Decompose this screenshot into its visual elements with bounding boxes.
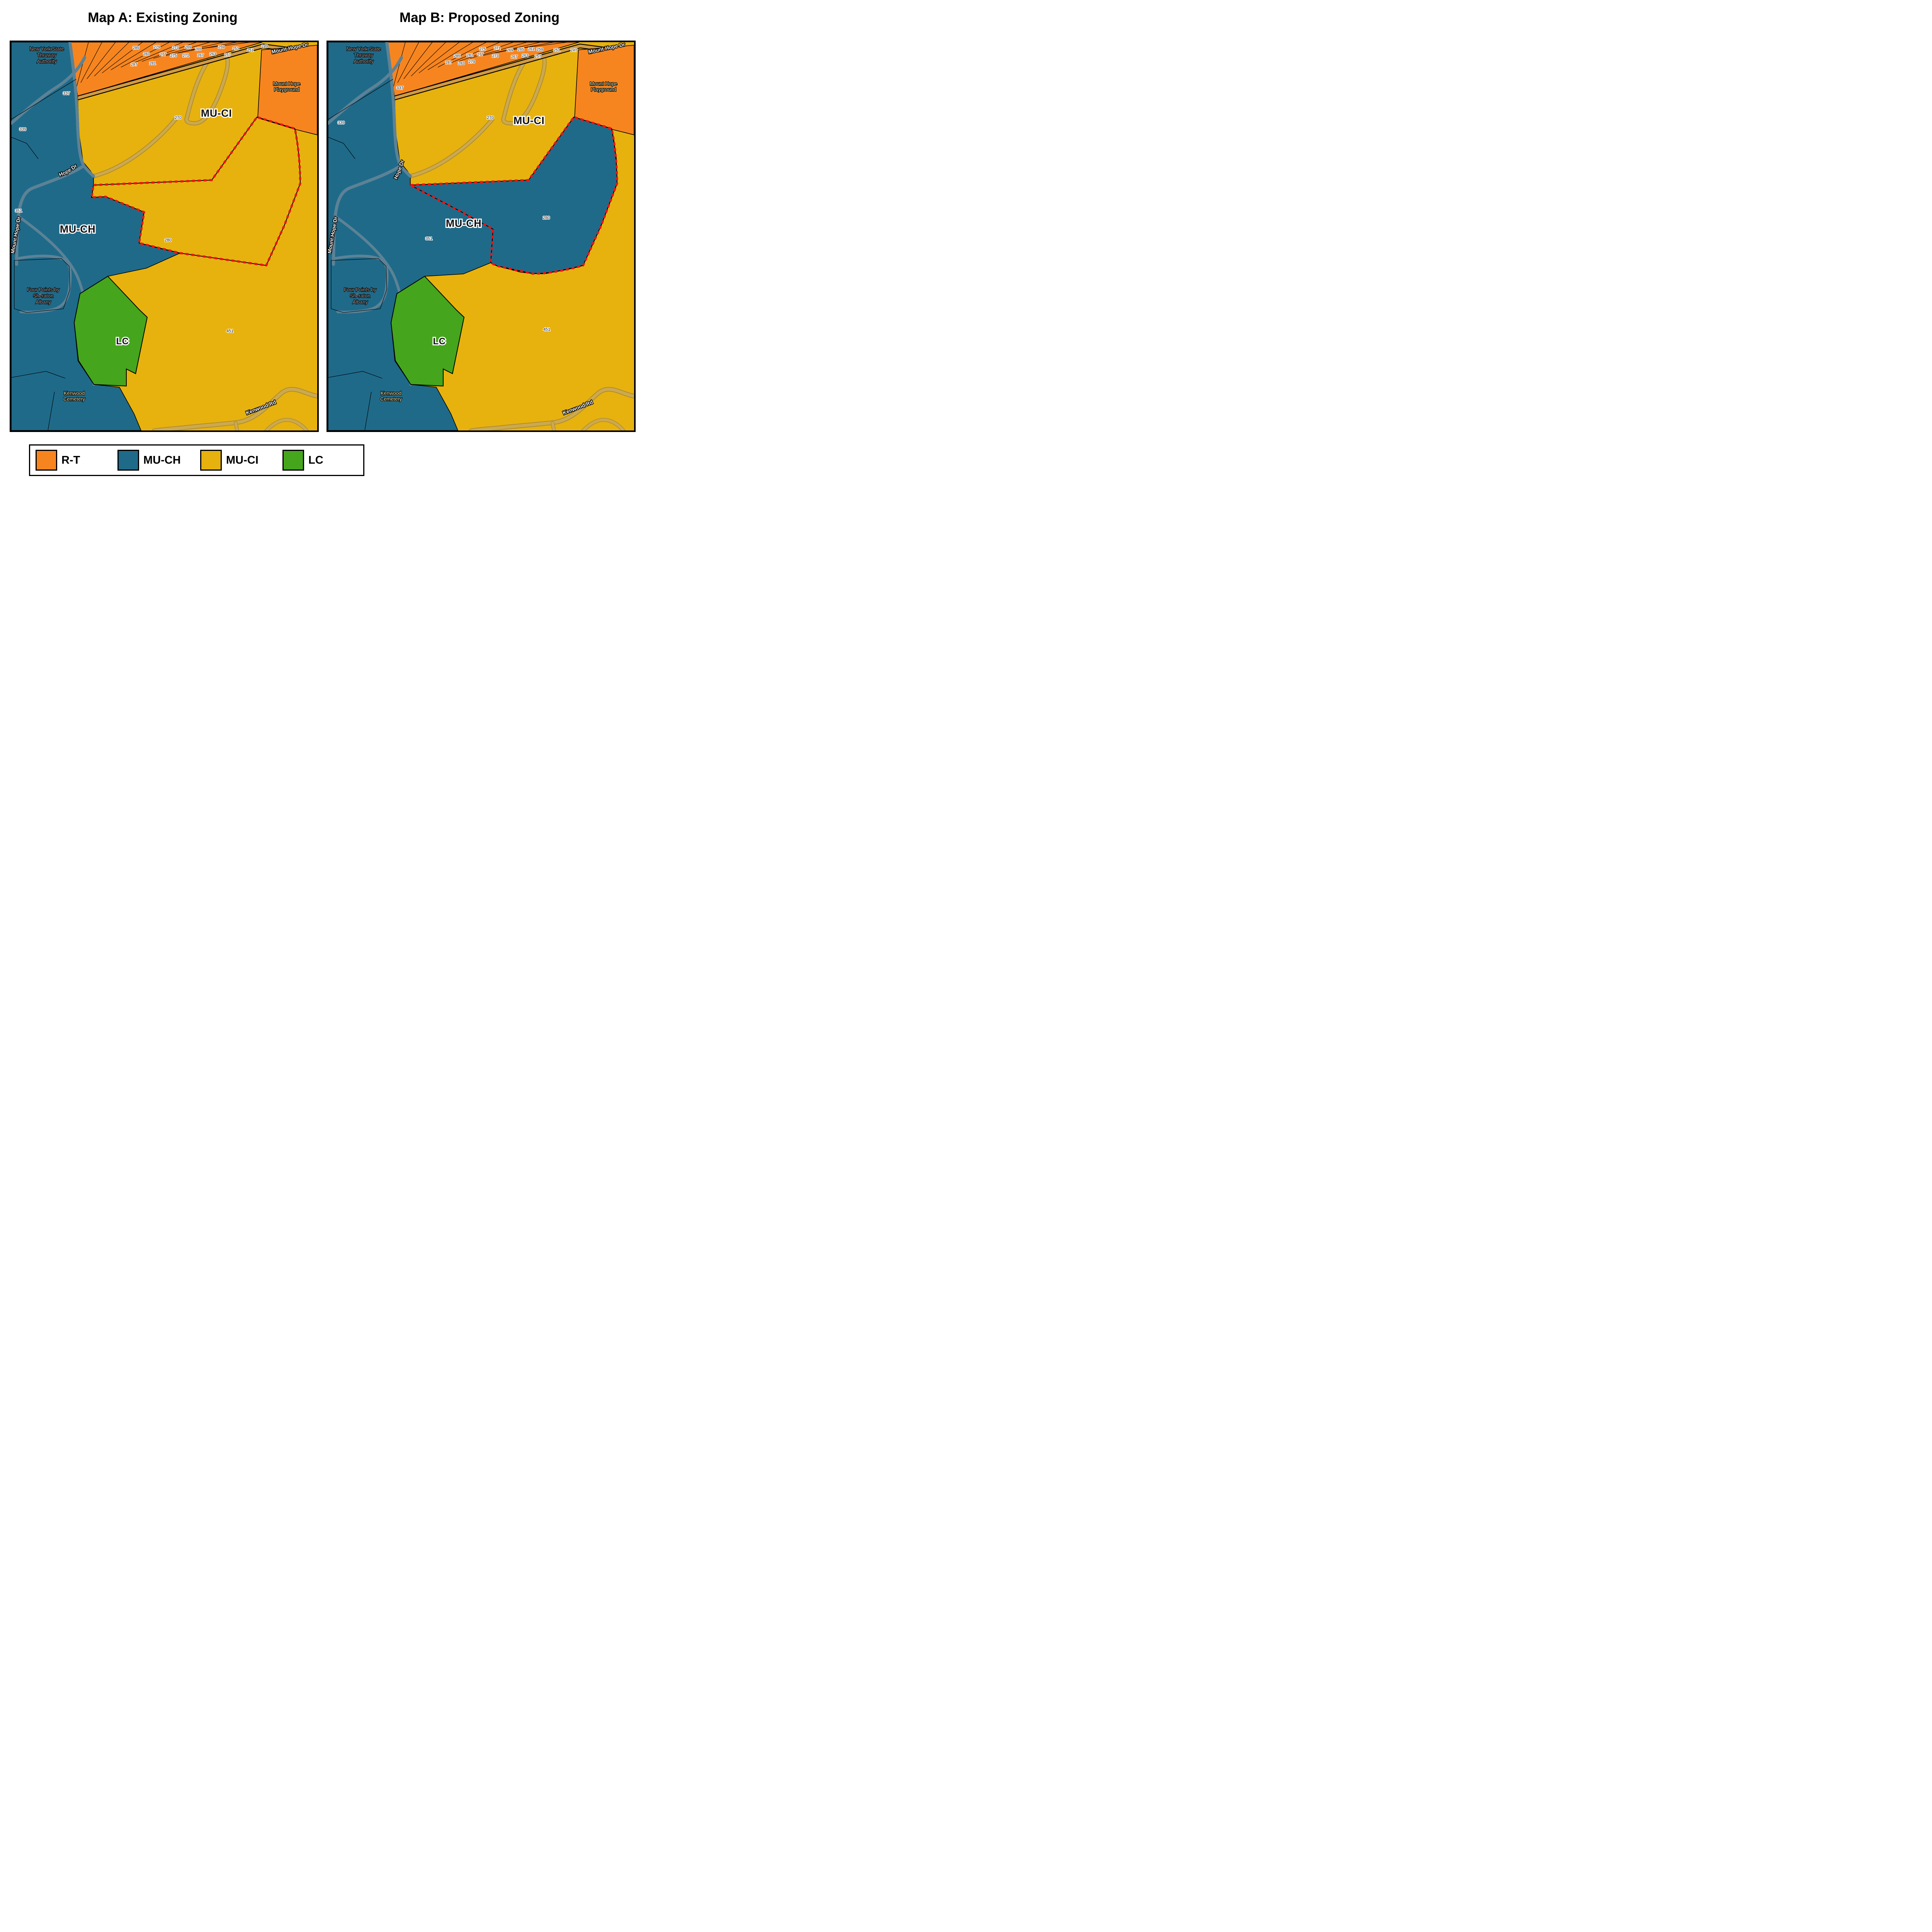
map-label: Four Points by <box>27 287 60 293</box>
legend-box: R-TMU-CHMU-CILC <box>29 444 364 476</box>
map-label: 247 <box>571 48 577 53</box>
map-label: Cemetery <box>63 396 85 402</box>
map-label: MU-CI <box>201 107 232 119</box>
map-label: LC <box>433 336 446 347</box>
map-label: MU-CH <box>60 223 95 235</box>
map-label: Thruway <box>354 52 373 58</box>
map-label: 339 <box>19 127 26 132</box>
map-label: 451 <box>226 329 233 333</box>
map-label: 277 <box>160 53 167 57</box>
legend-label: LC <box>308 454 323 467</box>
map-b-canvas: Mount Hope Dr MU-CIMU-CHLC33733935127028… <box>328 42 634 430</box>
map-label: 270 <box>175 116 182 120</box>
map-label: 287 <box>446 61 452 65</box>
map-label: 279 <box>469 60 475 64</box>
legend-swatch-lc <box>282 450 304 471</box>
zoning-map-comparison: Map A: Existing Zoning Map B: Proposed Z… <box>0 0 638 493</box>
map-label: Mount Hope <box>590 81 617 87</box>
map-label: 283 <box>143 52 150 56</box>
map-label: 273 <box>492 54 499 58</box>
legend-label: MU-CH <box>143 454 181 467</box>
map-label: New York State <box>30 46 64 52</box>
map-label: New York State <box>347 46 381 52</box>
legend-swatch-r-t <box>36 450 57 471</box>
legend-swatch-mu-ci <box>200 450 222 471</box>
map-label: 267 <box>511 55 518 59</box>
legend-label: MU-CI <box>226 454 259 467</box>
map-label: 273 <box>172 46 179 50</box>
map-label: 263 <box>210 52 216 56</box>
map-label: 251 <box>247 48 254 53</box>
map-label: 337 <box>63 91 70 96</box>
map-label: 259 <box>218 45 225 49</box>
map-label: 271 <box>183 54 189 58</box>
map-label: 281 <box>150 61 156 66</box>
map-label: Authority <box>37 58 57 64</box>
map-label: Albany <box>352 299 368 305</box>
map-a-canvas: Mount Hope Dr MU-CIMU-CHLC33733935127028… <box>11 42 317 430</box>
map-label: Authority <box>354 58 374 64</box>
map-label: Albany <box>36 299 51 305</box>
map-a-panel: Mount Hope Dr MU-CIMU-CHLC33733935127028… <box>10 41 319 432</box>
map-label: 267 <box>197 53 204 58</box>
map-label: 337 <box>396 86 403 90</box>
map-label: 259 <box>537 48 543 52</box>
map-label: 280 <box>543 216 550 220</box>
map-label: 263 <box>522 54 529 58</box>
map-label: 271 <box>494 46 501 51</box>
map-label: 351 <box>425 236 432 241</box>
map-label: 269 <box>507 48 514 53</box>
map-b-panel: Mount Hope Dr MU-CIMU-CHLC33733935127028… <box>327 41 636 432</box>
map-a-title: Map A: Existing Zoning <box>10 10 316 26</box>
map-label: Thruway <box>37 52 56 58</box>
map-label: Kenwood <box>64 390 85 396</box>
map-label: 261 <box>528 47 535 51</box>
legend-item-mu-ch: MU-CH <box>117 446 181 475</box>
map-label: 287 <box>131 63 138 67</box>
map-label: 281 <box>467 53 473 58</box>
map-label: 253 <box>233 47 239 51</box>
map-label: 351 <box>15 209 22 213</box>
map-label: 279 <box>154 45 160 49</box>
map-label: 277 <box>477 53 484 57</box>
map-label: 249 <box>262 44 268 49</box>
map-label: Mount Hope <box>273 81 301 87</box>
map-label: 285 <box>133 46 139 50</box>
legend-swatch-mu-ch <box>117 450 139 471</box>
map-label: 251 <box>554 48 560 53</box>
map-label: 265 <box>518 48 524 52</box>
map-label: 275 <box>480 47 486 51</box>
map-label: 270 <box>487 116 494 120</box>
map-label: 283 <box>458 61 465 66</box>
legend-item-mu-ci: MU-CI <box>200 446 259 475</box>
map-label: MU-CI <box>514 115 544 126</box>
map-label: 275 <box>170 54 177 58</box>
map-label: 257 <box>535 54 541 59</box>
map-label: 451 <box>543 327 550 332</box>
legend-label: R-T <box>61 454 80 467</box>
map-label: 339 <box>338 121 345 125</box>
map-label: Playground <box>274 87 299 92</box>
map-label: 280 <box>165 238 172 243</box>
map-label: LC <box>116 336 129 347</box>
map-label: Sheraton <box>350 293 371 299</box>
map-label: 265 <box>195 47 202 51</box>
legend-item-r-t: R-T <box>36 446 80 475</box>
map-label: Sheraton <box>33 293 54 299</box>
map-label: Four Points by <box>344 287 376 293</box>
map-b-title: Map B: Proposed Zoning <box>327 10 633 26</box>
map-label: 269 <box>185 45 192 49</box>
map-label: 257 <box>224 53 231 57</box>
map-label: Playground <box>591 87 616 92</box>
legend-item-lc: LC <box>282 446 323 475</box>
map-label: MU-CH <box>446 218 481 229</box>
map-label: Cemetery <box>380 396 402 402</box>
map-label: 285 <box>454 54 461 58</box>
map-label: Kenwood <box>381 390 401 396</box>
